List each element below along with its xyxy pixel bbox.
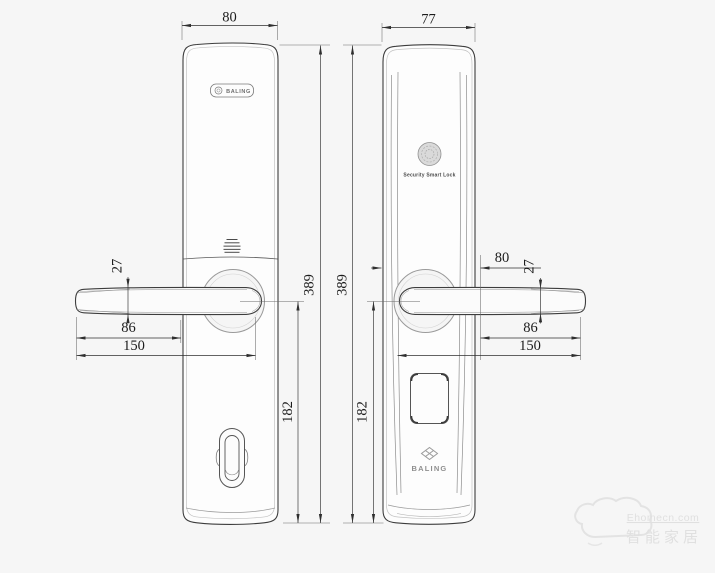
drawing-canvas: BALING	[0, 0, 715, 573]
label-rear-width: 77	[421, 12, 436, 28]
fingerprint-caption: Security Smart Lock	[403, 173, 455, 179]
front-brand-text: BALING	[226, 89, 251, 95]
dimension-arrows	[77, 24, 581, 523]
label-rear-150: 150	[519, 338, 541, 354]
dimension-labels: 80 77 389 182 389 182 27 27 86 150 80 86…	[110, 10, 541, 423]
label-front-width: 80	[222, 10, 237, 26]
label-front-lower-height: 182	[280, 401, 296, 423]
label-front-total-height: 389	[302, 274, 318, 296]
label-front-150: 150	[123, 338, 145, 354]
keyhole	[216, 429, 248, 488]
label-rear-total-height: 389	[335, 274, 351, 296]
dimension-lines	[77, 26, 581, 524]
rear-brand-text: BALING	[412, 464, 448, 473]
card-window	[411, 374, 449, 424]
label-rear-80: 80	[495, 250, 510, 266]
front-view: BALING	[76, 43, 279, 524]
label-front-handle-height: 27	[110, 259, 126, 274]
front-handle	[76, 287, 262, 314]
label-rear-86: 86	[523, 320, 538, 336]
watermark: Ehomecn.com 智能家居	[575, 498, 702, 546]
fingerprint-icon	[418, 143, 441, 166]
cloud-icon-swash	[588, 543, 602, 545]
rear-handle	[400, 287, 586, 314]
watermark-domain: Ehomecn.com	[627, 512, 700, 524]
label-rear-lower-height: 182	[355, 401, 371, 423]
label-front-86: 86	[121, 320, 136, 336]
label-rear-handle-height: 27	[522, 259, 538, 274]
watermark-cjk: 智能家居	[626, 528, 702, 546]
rear-view: Security Smart Lock BALING	[383, 45, 586, 525]
extension-lines	[77, 21, 581, 523]
lock-dimension-drawing: BALING	[0, 0, 715, 573]
